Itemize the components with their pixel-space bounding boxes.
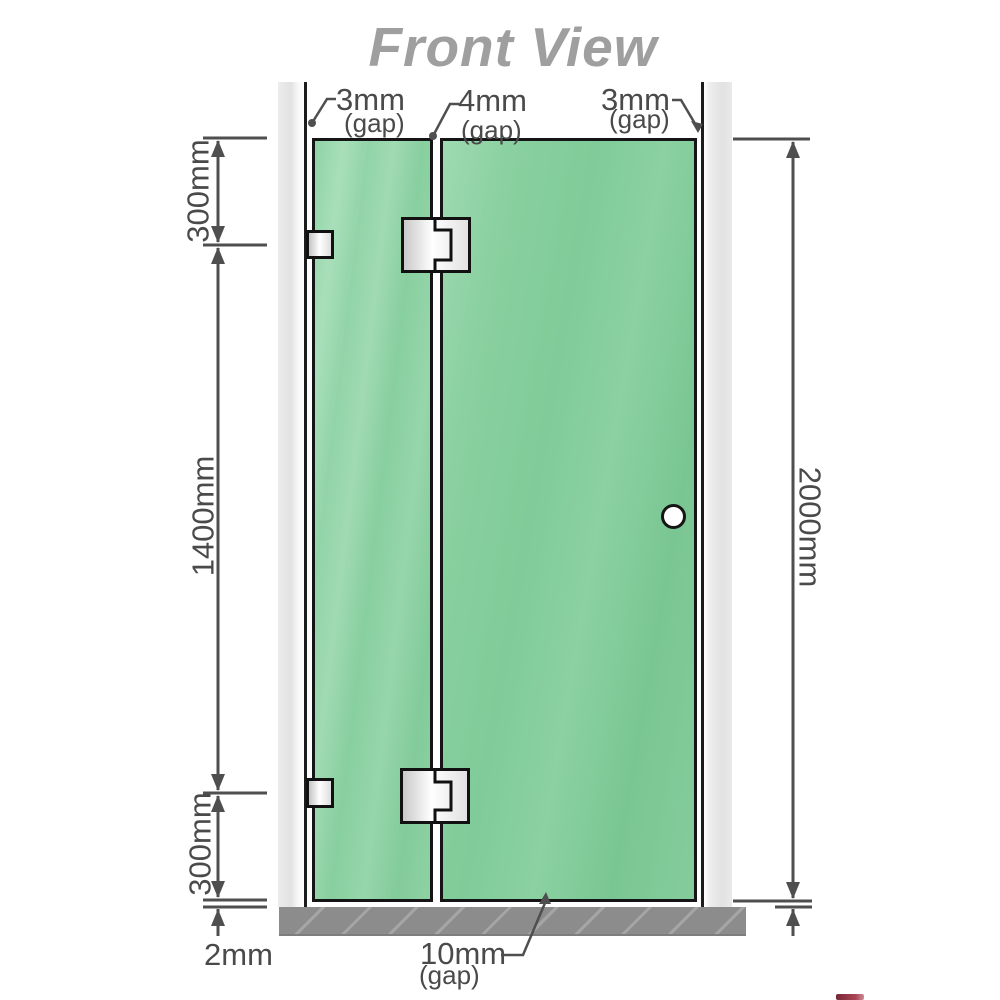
wall-bracket-bottom-icon bbox=[306, 778, 334, 808]
gap-label-left-note: (gap) bbox=[344, 110, 405, 136]
door-handle-icon bbox=[661, 504, 686, 529]
front-view-diagram: Front View bbox=[0, 0, 1000, 1000]
wall-left bbox=[278, 82, 307, 907]
wall-bracket-top-icon bbox=[306, 230, 334, 259]
wall-right bbox=[701, 82, 732, 907]
gap-label-middle-note: (gap) bbox=[461, 117, 522, 143]
gap-label-right-note: (gap) bbox=[609, 106, 670, 132]
dimension-left-middle: 1400mm bbox=[188, 456, 219, 577]
glass-panel-door bbox=[440, 138, 697, 902]
dimension-left-bottom: 300mm bbox=[185, 792, 216, 895]
door-hinge-top-icon bbox=[401, 217, 471, 273]
floor-gap-label: 2mm bbox=[204, 939, 273, 970]
gap-label-middle-value: 4mm bbox=[458, 85, 527, 116]
door-hinge-bottom-icon bbox=[400, 768, 470, 824]
watermark-fragment bbox=[836, 994, 864, 1000]
shower-base-floor bbox=[279, 907, 746, 936]
dimension-right-full: 2000mm bbox=[795, 467, 826, 588]
dimension-left-top: 300mm bbox=[183, 139, 214, 242]
door-bottom-gap-note: (gap) bbox=[419, 962, 480, 988]
page-title: Front View bbox=[368, 20, 657, 75]
